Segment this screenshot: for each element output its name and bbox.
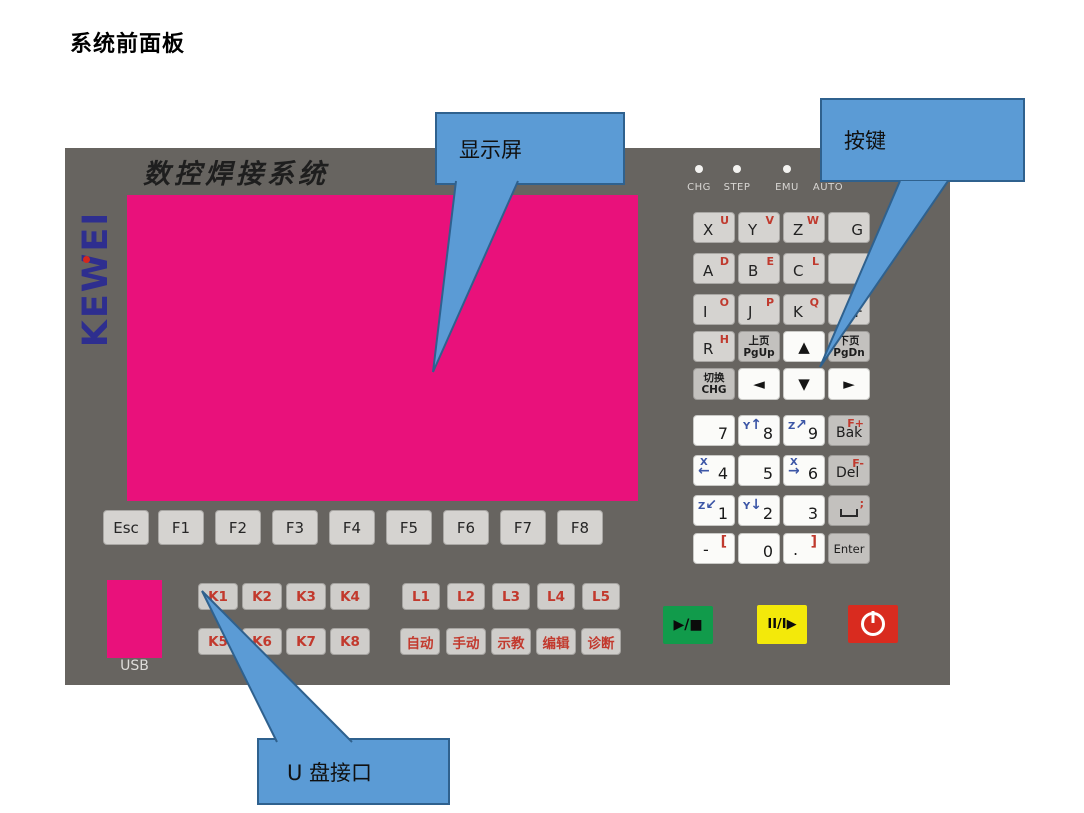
key-blank[interactable] [828, 253, 870, 284]
key-z[interactable]: Z W [783, 212, 825, 243]
led-label: CHG [687, 182, 711, 193]
callout-keys: 按键 [820, 98, 1025, 182]
key-j[interactable]: J P [738, 294, 780, 325]
up-arrow-icon: ▲ [798, 338, 810, 356]
key-l5[interactable]: L5 [582, 583, 620, 610]
key-k8[interactable]: K8 [330, 628, 370, 655]
power-icon [861, 612, 885, 636]
key-4[interactable]: X← 4 [693, 455, 735, 486]
start-stop-button[interactable]: ▶/■ [663, 606, 713, 644]
key-space[interactable]: ; [828, 495, 870, 526]
key-del[interactable]: Del F- [828, 455, 870, 486]
key-1[interactable]: Z↙ 1 [693, 495, 735, 526]
key-8[interactable]: Y↑ 8 [738, 415, 780, 446]
down-arrow-icon: ▼ [798, 375, 810, 393]
key-9[interactable]: Z↗ 9 [783, 415, 825, 446]
callout-usb: U 盘接口 [257, 738, 450, 805]
led-label: STEP [724, 182, 751, 193]
led-step: STEP [714, 165, 760, 194]
key-k5[interactable]: K5 [198, 628, 238, 655]
key-f2[interactable]: F2 [215, 510, 261, 545]
key-pgdn[interactable]: 下页 PgDn [828, 331, 870, 362]
key-k1[interactable]: K1 [198, 583, 238, 610]
key-y[interactable]: Y V [738, 212, 780, 243]
key-bak[interactable]: Bak F+ [828, 415, 870, 446]
key-mode-auto[interactable]: 自动 [400, 628, 440, 655]
y-up-jog-icon: Y↑ [743, 418, 762, 432]
key-pgup[interactable]: 上页 PgUp [738, 331, 780, 362]
key-arrow-down[interactable]: ▼ [783, 368, 825, 400]
x-left-jog-icon: X← [698, 458, 710, 476]
space-icon [840, 509, 858, 517]
key-mode-manual[interactable]: 手动 [446, 628, 486, 655]
panel-heading: 数控焊接系统 [143, 152, 329, 191]
key-mode-diagnose[interactable]: 诊断 [581, 628, 621, 655]
right-arrow-icon: ► [843, 375, 855, 393]
key-chg-switch[interactable]: 切换 CHG [693, 368, 735, 400]
key-l3[interactable]: L3 [492, 583, 530, 610]
y-down-jog-icon: Y↓ [743, 498, 762, 512]
key-r[interactable]: R H [693, 331, 735, 362]
key-3[interactable]: 3 [783, 495, 825, 526]
key-k[interactable]: K Q [783, 294, 825, 325]
brand-logo-text: KEWEI [76, 211, 116, 348]
key-0[interactable]: 0 [738, 533, 780, 564]
key-a[interactable]: A D [693, 253, 735, 284]
key-x[interactable]: X U [693, 212, 735, 243]
led-label: AUTO [813, 182, 843, 193]
callout-display: 显示屏 [435, 112, 625, 185]
key-arrow-up[interactable]: ▲ [783, 331, 825, 362]
pause-step-button[interactable]: II/I▶ [757, 605, 807, 644]
key-6[interactable]: X→ 6 [783, 455, 825, 486]
key-2[interactable]: Y↓ 2 [738, 495, 780, 526]
key-k6[interactable]: K6 [242, 628, 282, 655]
brand-logo-dot [83, 256, 90, 263]
page: 系统前面板 KEWEI 数控焊接系统 CHG STEP EMU AUTO X U… [0, 0, 1084, 813]
z-down-jog-icon: Z↙ [698, 498, 717, 512]
led-dot-icon [695, 165, 703, 173]
key-arrow-right[interactable]: ► [828, 368, 870, 400]
key-k2[interactable]: K2 [242, 583, 282, 610]
key-mode-teach[interactable]: 示教 [491, 628, 531, 655]
brand-logo: KEWEI [70, 194, 122, 364]
key-f4[interactable]: F4 [329, 510, 375, 545]
led-label: EMU [775, 182, 799, 193]
key-l2[interactable]: L2 [447, 583, 485, 610]
key-f6[interactable]: F6 [443, 510, 489, 545]
led-dot-icon [733, 165, 741, 173]
key-5[interactable]: 5 [738, 455, 780, 486]
key-f[interactable]: F N [828, 294, 870, 325]
key-enter[interactable]: Enter [828, 533, 870, 564]
key-minus[interactable]: - [ [693, 533, 735, 564]
left-arrow-icon: ◄ [753, 375, 765, 393]
key-b[interactable]: B E [738, 253, 780, 284]
key-c[interactable]: C L [783, 253, 825, 284]
z-up-jog-icon: Z↗ [788, 418, 807, 432]
x-right-jog-icon: X→ [788, 458, 800, 476]
key-k4[interactable]: K4 [330, 583, 370, 610]
key-7[interactable]: 7 [693, 415, 735, 446]
key-esc[interactable]: Esc [103, 510, 149, 545]
led-emu: EMU [764, 165, 810, 194]
key-k3[interactable]: K3 [286, 583, 326, 610]
led-dot-icon [783, 165, 791, 173]
power-button[interactable] [848, 605, 898, 643]
start-stop-icon: ▶/■ [673, 617, 702, 633]
key-i[interactable]: I O [693, 294, 735, 325]
usb-port [107, 580, 162, 658]
key-dot[interactable]: . ] [783, 533, 825, 564]
key-l4[interactable]: L4 [537, 583, 575, 610]
page-title: 系统前面板 [70, 26, 185, 58]
key-l1[interactable]: L1 [402, 583, 440, 610]
key-f1[interactable]: F1 [158, 510, 204, 545]
display-screen [127, 195, 638, 501]
pause-step-icon: II/I▶ [767, 617, 796, 632]
key-mode-edit[interactable]: 编辑 [536, 628, 576, 655]
key-f5[interactable]: F5 [386, 510, 432, 545]
key-f3[interactable]: F3 [272, 510, 318, 545]
key-k7[interactable]: K7 [286, 628, 326, 655]
key-f7[interactable]: F7 [500, 510, 546, 545]
key-f8[interactable]: F8 [557, 510, 603, 545]
key-arrow-left[interactable]: ◄ [738, 368, 780, 400]
key-g[interactable]: G [828, 212, 870, 243]
usb-port-label: USB [107, 658, 162, 674]
